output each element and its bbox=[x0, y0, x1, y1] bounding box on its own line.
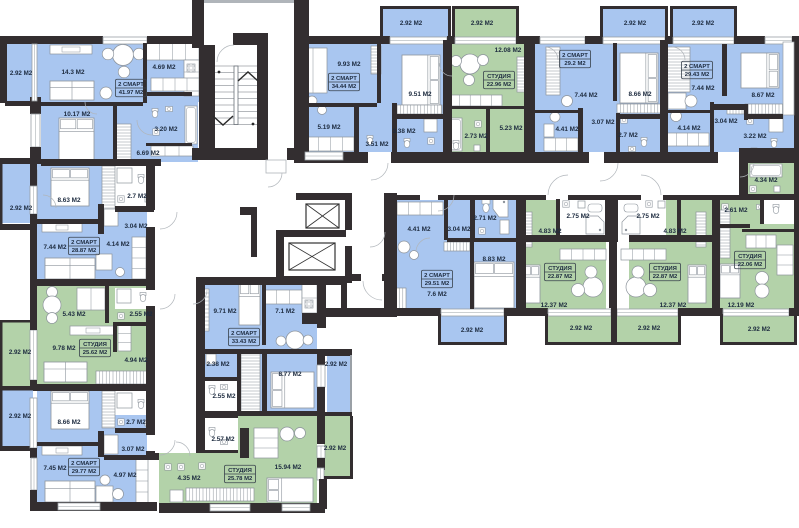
svg-text:2 СМАРТ: 2 СМАРТ bbox=[118, 82, 144, 88]
svg-text:2.92 М2: 2.92 М2 bbox=[748, 326, 771, 333]
svg-text:7.44 М2: 7.44 М2 bbox=[43, 244, 67, 251]
svg-text:7.1 М2: 7.1 М2 bbox=[275, 308, 295, 315]
svg-text:2.7 М2: 2.7 М2 bbox=[126, 419, 146, 426]
svg-text:25.62 М2: 25.62 М2 bbox=[83, 350, 108, 356]
svg-text:3.07 М2: 3.07 М2 bbox=[121, 446, 145, 453]
svg-text:3.20 М2: 3.20 М2 bbox=[154, 126, 178, 133]
svg-text:8.66 М2: 8.66 М2 bbox=[57, 419, 81, 426]
svg-text:29.77 М2: 29.77 М2 bbox=[72, 469, 97, 475]
svg-text:22.96 М2: 22.96 М2 bbox=[487, 82, 512, 88]
svg-text:СТУДИЯ: СТУДИЯ bbox=[487, 74, 511, 80]
svg-text:5.23 М2: 5.23 М2 bbox=[499, 125, 523, 132]
svg-text:7.44 М2: 7.44 М2 bbox=[574, 92, 598, 99]
svg-text:2 СМАРТ: 2 СМАРТ bbox=[71, 461, 97, 467]
svg-text:25.78 М2: 25.78 М2 bbox=[228, 476, 253, 482]
svg-text:9.78 М2: 9.78 М2 bbox=[52, 345, 76, 352]
svg-text:15.94 М2: 15.94 М2 bbox=[275, 464, 302, 471]
svg-text:3.04 М2: 3.04 М2 bbox=[447, 226, 471, 233]
svg-text:4.97 М2: 4.97 М2 bbox=[113, 472, 137, 479]
svg-text:8.83 М2: 8.83 М2 bbox=[482, 256, 506, 263]
svg-text:22.87 М2: 22.87 М2 bbox=[653, 274, 678, 280]
svg-text:8.66 М2: 8.66 М2 bbox=[628, 91, 652, 98]
svg-text:3.51 М2: 3.51 М2 bbox=[365, 141, 389, 148]
svg-text:12.19 М2: 12.19 М2 bbox=[728, 302, 755, 309]
svg-text:6.69 М2: 6.69 М2 bbox=[136, 150, 160, 157]
svg-text:2.38 М2: 2.38 М2 bbox=[206, 361, 230, 368]
svg-text:2.71 М2: 2.71 М2 bbox=[473, 215, 497, 222]
svg-text:4.35 М2: 4.35 М2 bbox=[177, 475, 201, 482]
svg-text:2 СМАРТ: 2 СМАРТ bbox=[684, 64, 710, 70]
svg-text:4.83 М2: 4.83 М2 bbox=[663, 228, 687, 235]
svg-text:2.92 М2: 2.92 М2 bbox=[10, 70, 33, 77]
svg-text:8.77 М2: 8.77 М2 bbox=[278, 371, 302, 378]
svg-text:СТУДИЯ: СТУДИЯ bbox=[653, 266, 677, 272]
svg-text:7.6 М2: 7.6 М2 bbox=[427, 291, 447, 298]
svg-text:29.2 М2: 29.2 М2 bbox=[564, 61, 586, 67]
svg-text:12.37 М2: 12.37 М2 bbox=[660, 302, 687, 309]
svg-text:2.75 М2: 2.75 М2 bbox=[636, 213, 660, 220]
svg-text:4.41 М2: 4.41 М2 bbox=[407, 226, 431, 233]
svg-text:2.92 М2: 2.92 М2 bbox=[9, 349, 32, 356]
svg-text:2.92 М2: 2.92 М2 bbox=[692, 20, 715, 27]
svg-text:СТУДИЯ: СТУДИЯ bbox=[83, 342, 107, 348]
svg-text:4.34 М2: 4.34 М2 bbox=[754, 177, 778, 184]
svg-text:12.08 М2: 12.08 М2 bbox=[495, 47, 522, 54]
svg-text:2 СМАРТ: 2 СМАРТ bbox=[331, 76, 357, 82]
svg-text:2.92 М2: 2.92 М2 bbox=[9, 413, 32, 420]
svg-text:2.73 М2: 2.73 М2 bbox=[464, 133, 488, 140]
svg-text:2.55 М2: 2.55 М2 bbox=[129, 311, 153, 318]
svg-text:2 СМАРТ: 2 СМАРТ bbox=[231, 331, 257, 337]
svg-text:3.38 М2: 3.38 М2 bbox=[392, 128, 416, 135]
svg-text:8.63 М2: 8.63 М2 bbox=[57, 197, 81, 204]
svg-text:9.51 М2: 9.51 М2 bbox=[408, 91, 432, 98]
svg-text:2 СМАРТ: 2 СМАРТ bbox=[562, 53, 588, 59]
svg-text:2.7 М2: 2.7 М2 bbox=[618, 132, 638, 139]
svg-text:2.55 М2: 2.55 М2 bbox=[212, 393, 236, 400]
svg-text:2.92 М2: 2.92 М2 bbox=[461, 327, 484, 334]
svg-text:4.94 М2: 4.94 М2 bbox=[124, 357, 148, 364]
svg-text:7.45 М2: 7.45 М2 bbox=[43, 465, 67, 472]
svg-text:22.87 М2: 22.87 М2 bbox=[548, 274, 573, 280]
svg-text:3.07 М2: 3.07 М2 bbox=[591, 119, 615, 126]
svg-text:2.7 М2: 2.7 М2 bbox=[127, 193, 147, 200]
svg-text:8.67 М2: 8.67 М2 bbox=[751, 92, 775, 99]
svg-text:2.92 М2: 2.92 М2 bbox=[400, 20, 423, 27]
svg-text:2.92 М2: 2.92 М2 bbox=[325, 361, 348, 368]
svg-text:4.14 М2: 4.14 М2 bbox=[106, 241, 130, 248]
svg-text:СТУДИЯ: СТУДИЯ bbox=[738, 254, 762, 260]
svg-text:3.04 М2: 3.04 М2 bbox=[714, 118, 738, 125]
svg-text:4.83 М2: 4.83 М2 bbox=[538, 228, 562, 235]
svg-text:2 СМАРТ: 2 СМАРТ bbox=[424, 273, 450, 279]
svg-text:2.92 М2: 2.92 М2 bbox=[10, 205, 33, 212]
svg-text:14.3 М2: 14.3 М2 bbox=[61, 69, 85, 76]
svg-text:2.75 М2: 2.75 М2 bbox=[566, 213, 590, 220]
svg-text:3.22 М2: 3.22 М2 bbox=[743, 133, 767, 140]
svg-text:7.44 М2: 7.44 М2 bbox=[691, 85, 715, 92]
svg-text:2.92 М2: 2.92 М2 bbox=[471, 20, 494, 27]
svg-text:29.43 М2: 29.43 М2 bbox=[685, 72, 710, 78]
svg-text:10.17 М2: 10.17 М2 bbox=[64, 111, 91, 118]
svg-text:2.61 М2: 2.61 М2 bbox=[724, 207, 748, 214]
svg-text:9.93 М2: 9.93 М2 bbox=[337, 61, 361, 68]
svg-text:33.43 М2: 33.43 М2 bbox=[232, 339, 257, 345]
svg-text:5.19 М2: 5.19 М2 bbox=[317, 124, 341, 131]
svg-text:28.87 М2: 28.87 М2 bbox=[72, 248, 97, 254]
svg-text:12.37 М2: 12.37 М2 bbox=[541, 302, 568, 309]
svg-text:3.04 М2: 3.04 М2 bbox=[124, 223, 148, 230]
svg-text:СТУДИЯ: СТУДИЯ bbox=[228, 468, 252, 474]
svg-text:2.92 М2: 2.92 М2 bbox=[324, 445, 347, 452]
svg-text:9.71 М2: 9.71 М2 bbox=[213, 308, 237, 315]
svg-text:2 СМАРТ: 2 СМАРТ bbox=[71, 240, 97, 246]
svg-text:2.92 М2: 2.92 М2 bbox=[570, 325, 593, 332]
svg-text:4.14 М2: 4.14 М2 bbox=[677, 125, 701, 132]
svg-text:2.92 М2: 2.92 М2 bbox=[624, 20, 647, 27]
svg-text:5.43 М2: 5.43 М2 bbox=[62, 311, 86, 318]
svg-text:22.06 М2: 22.06 М2 bbox=[738, 262, 763, 268]
svg-text:СТУДИЯ: СТУДИЯ bbox=[548, 266, 572, 272]
svg-text:4.41 М2: 4.41 М2 bbox=[555, 126, 579, 133]
svg-text:4.69 М2: 4.69 М2 bbox=[152, 64, 176, 71]
svg-text:34.44 М2: 34.44 М2 bbox=[332, 84, 357, 90]
svg-text:29.51 М2: 29.51 М2 bbox=[425, 281, 450, 287]
svg-text:2.92 М2: 2.92 М2 bbox=[638, 325, 661, 332]
svg-text:41.97 М2: 41.97 М2 bbox=[119, 90, 144, 96]
svg-text:2.57 М2: 2.57 М2 bbox=[211, 436, 235, 443]
